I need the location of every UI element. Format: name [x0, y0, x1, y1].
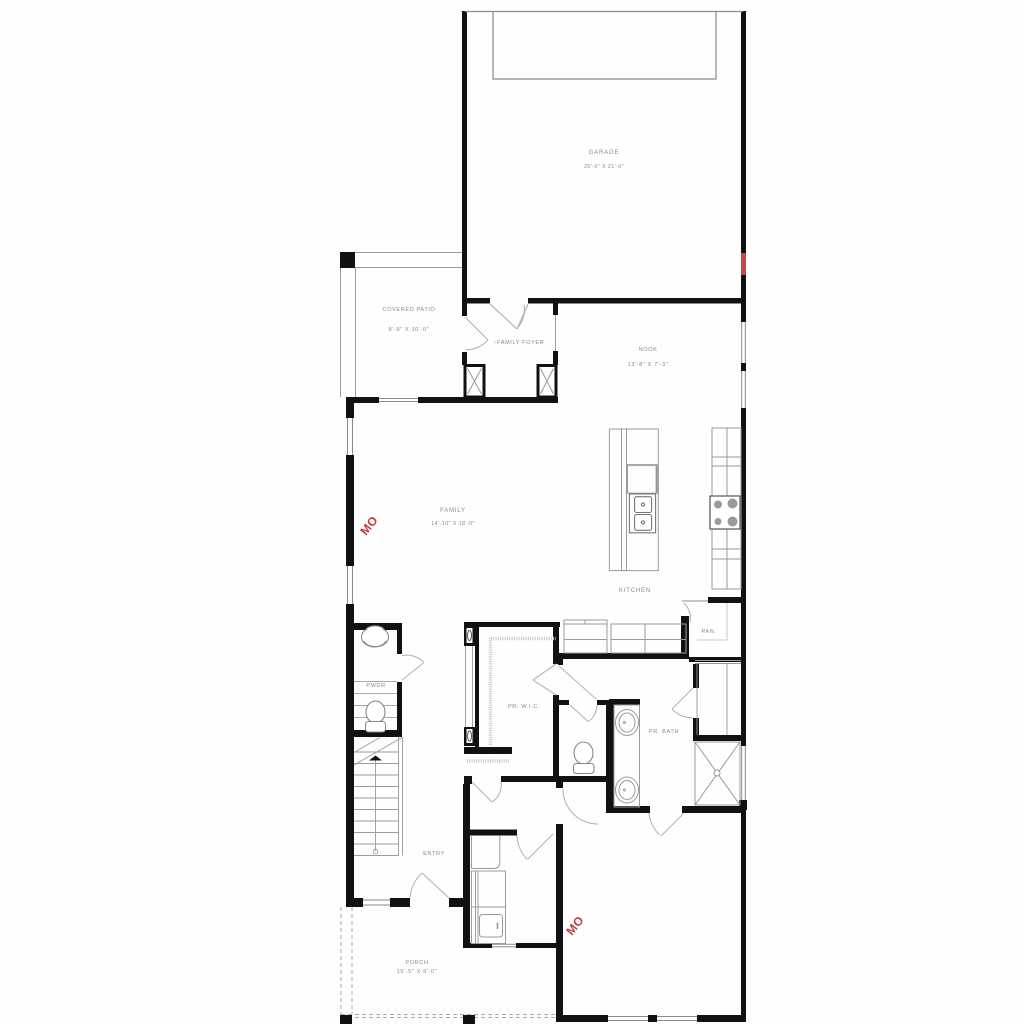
svg-text:20'-0" X 21'-0": 20'-0" X 21'-0": [584, 164, 624, 170]
svg-text:8'-8" X 10'-0": 8'-8" X 10'-0": [389, 327, 430, 333]
svg-text:15'-5" X 9'-0": 15'-5" X 9'-0": [397, 969, 438, 975]
svg-text:PR. W.I.C.: PR. W.I.C.: [508, 704, 540, 710]
svg-text:NOOK: NOOK: [639, 347, 658, 353]
svg-text:KITCHEN: KITCHEN: [619, 588, 651, 594]
svg-text:PORCH: PORCH: [405, 960, 428, 966]
svg-text:ENTRY: ENTRY: [423, 851, 445, 857]
svg-text:↑FAMILY FOYER: ↑FAMILY FOYER: [494, 340, 545, 346]
svg-text:13'-8" X 7'-3": 13'-8" X 7'-3": [628, 362, 669, 368]
svg-text:PWDR: PWDR: [366, 683, 386, 689]
svg-text:14'-10" X 18'-0": 14'-10" X 18'-0": [431, 521, 474, 527]
svg-text:GARAGE: GARAGE: [589, 150, 619, 156]
svg-text:COVERED PATIO: COVERED PATIO: [383, 307, 436, 313]
svg-text:FAMILY: FAMILY: [440, 508, 466, 514]
svg-text:PAN.: PAN.: [701, 629, 716, 635]
svg-text:PR. BATH: PR. BATH: [649, 729, 679, 735]
